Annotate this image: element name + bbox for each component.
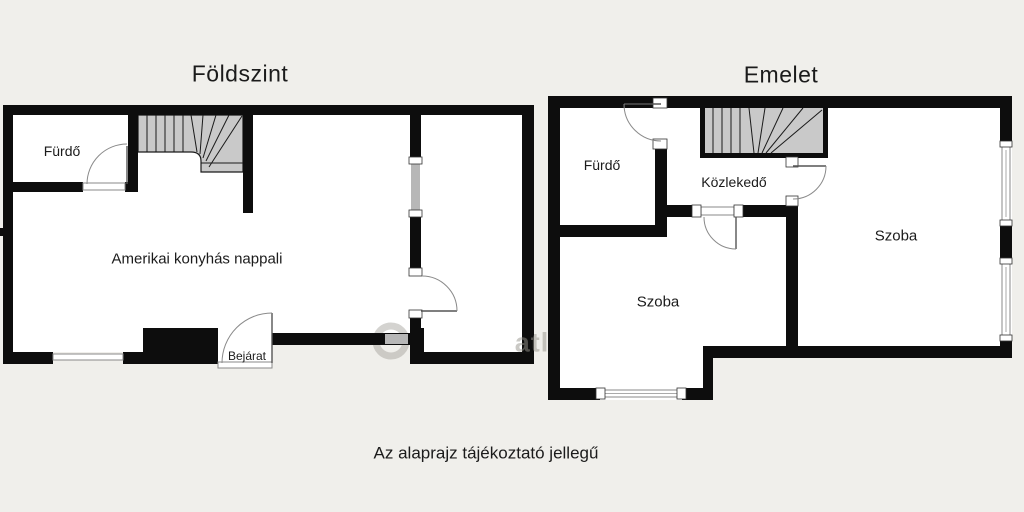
caption-disclaimer: Az alaprajz tájékoztató jellegű <box>374 445 599 462</box>
room-label-room-lower: Szoba <box>637 295 680 310</box>
upper-floor-plan <box>548 96 1012 400</box>
stairs-upper-icon <box>700 103 828 158</box>
ground-floor-footprint <box>3 105 534 368</box>
floor-title-ground: Földszint <box>192 63 289 86</box>
room-label-bathroom-ground: Fürdő <box>44 144 81 158</box>
room-label-room-right: Szoba <box>875 229 918 244</box>
floor-title-upper: Emelet <box>744 64 819 87</box>
watermark-fragment: atl <box>515 328 550 359</box>
floor-plan-page: Földszint Emelet Fürdő Amerikai konyhás … <box>0 0 1024 512</box>
room-label-living-room: Amerikai konyhás nappali <box>112 252 283 267</box>
entrance-label: Bejárat <box>228 350 266 362</box>
room-label-hallway: Közlekedő <box>701 175 766 189</box>
room-label-bathroom-upper: Fürdő <box>584 158 621 172</box>
